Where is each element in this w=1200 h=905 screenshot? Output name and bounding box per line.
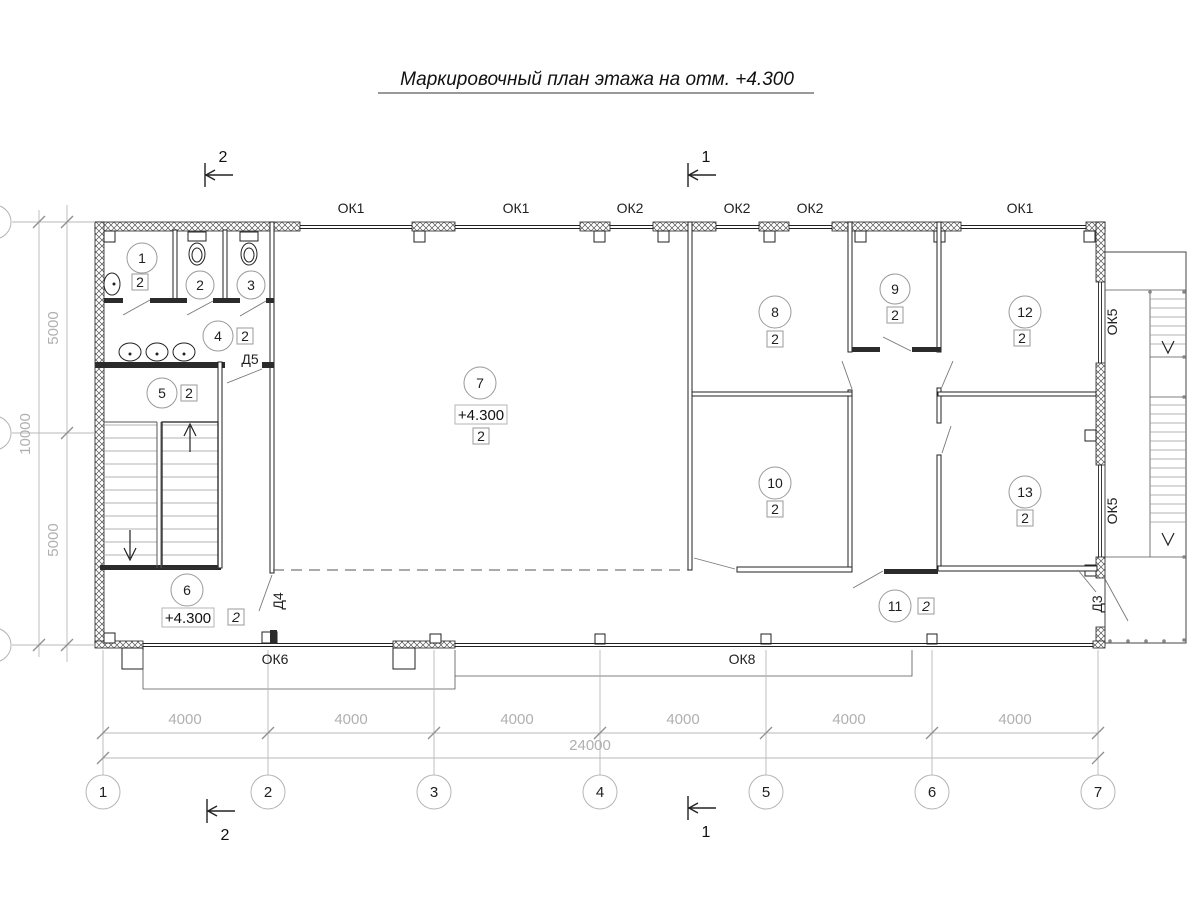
window-label-ok1: ОК1 — [338, 200, 365, 216]
room-marker-8: 8 2 — [759, 296, 791, 347]
room-marker-1: 1 2 — [127, 243, 157, 290]
window-label-ok2: ОК2 — [797, 200, 824, 216]
svg-text:11: 11 — [888, 598, 903, 614]
floor-plan-sheet: Маркировочный план этажа на отм. +4.300 — [0, 0, 1200, 900]
svg-text:2: 2 — [1021, 510, 1029, 526]
washbasin-icon — [119, 343, 141, 361]
dim-span-4: 4000 — [666, 711, 699, 728]
room-marker-5: 5 2 — [147, 378, 197, 408]
stair-down-arrow — [124, 530, 136, 560]
room-marker-13: 13 2 — [1009, 476, 1041, 526]
svg-text:2: 2 — [196, 277, 204, 293]
window-label-ok1: ОК1 — [503, 200, 530, 216]
svg-text:7: 7 — [476, 375, 484, 391]
svg-text:13: 13 — [1017, 484, 1033, 500]
door-leaf-d4 — [270, 630, 277, 644]
svg-text:2: 2 — [921, 598, 930, 614]
fixtures — [104, 232, 258, 361]
svg-text:2: 2 — [241, 328, 249, 344]
room-marker-12: 12 2 — [1009, 296, 1041, 346]
section-label: 1 — [702, 149, 711, 166]
door-label-d5: Д5 — [241, 351, 258, 367]
svg-text:1: 1 — [138, 250, 146, 266]
room-marker-3: 3 — [237, 271, 265, 299]
internal-stair — [104, 422, 218, 568]
dim-left-5000-top: 5000 — [45, 311, 62, 344]
section-label: 1 — [702, 824, 711, 841]
room-marker-6: 6 +4.300 2 — [162, 574, 244, 627]
svg-text:2: 2 — [891, 307, 899, 323]
axis-2: 2 — [264, 784, 272, 801]
room-marker-10: 10 2 — [759, 467, 791, 517]
door-label-d4: Д4 — [270, 592, 286, 609]
svg-text:8: 8 — [771, 304, 779, 320]
window-label-ok8: ОК8 — [729, 651, 756, 667]
room-marker-9: 9 2 — [880, 274, 910, 323]
axis-4: 4 — [596, 784, 604, 801]
drawing-title: Маркировочный план этажа на отм. +4.300 — [400, 69, 794, 90]
axis-5: 5 — [762, 784, 770, 801]
door-label-d3: Д3 — [1089, 595, 1105, 612]
svg-text:2: 2 — [771, 501, 779, 517]
dim-left-5000-bottom: 5000 — [45, 523, 62, 556]
window-label-ok5: ОК5 — [1104, 308, 1120, 335]
window-glazing — [143, 226, 1102, 647]
elevation-mark: +4.300 — [458, 407, 504, 424]
axis-6: 6 — [928, 784, 936, 801]
external-stair-down-arrow-1 — [1162, 341, 1174, 353]
svg-text:2: 2 — [185, 385, 193, 401]
svg-text:2: 2 — [771, 331, 779, 347]
svg-text:4: 4 — [214, 328, 222, 344]
room-marker-11: 11 2 — [879, 590, 934, 622]
svg-text:3: 3 — [247, 277, 255, 293]
svg-text:2: 2 — [1018, 330, 1026, 346]
dim-span-6: 4000 — [998, 711, 1031, 728]
axis-bubbles: 1 2 3 4 5 6 7 — [86, 775, 1115, 809]
bottom-dimensions: 4000 4000 4000 4000 4000 4000 24000 1 2 … — [86, 650, 1115, 809]
window-label-ok2: ОК2 — [617, 200, 644, 216]
svg-text:2: 2 — [231, 609, 240, 625]
washbasin-icon — [146, 343, 168, 361]
elevation-mark: +4.300 — [165, 610, 211, 627]
dim-span-3: 4000 — [500, 711, 533, 728]
dim-left-10000: 10000 — [17, 413, 34, 455]
toilet-icon — [188, 232, 206, 265]
section-mark-bottom-1: 1 — [688, 796, 716, 841]
floor-plan-drawing: Маркировочный план этажа на отм. +4.300 — [0, 0, 1200, 900]
svg-text:12: 12 — [1017, 304, 1033, 320]
window-label-ok1: ОК1 — [1007, 200, 1034, 216]
door-labels: Д5 Д4 Д3 — [241, 351, 1105, 613]
window-label-ok6: ОК6 — [262, 651, 289, 667]
axis-1: 1 — [99, 784, 107, 801]
svg-text:9: 9 — [891, 281, 899, 297]
external-stair-down-arrow-2 — [1162, 533, 1174, 545]
dim-span-2: 4000 — [334, 711, 367, 728]
dim-span-5: 4000 — [832, 711, 865, 728]
window-label-ok5: ОК5 — [1104, 497, 1120, 524]
svg-text:6: 6 — [183, 582, 191, 598]
room-marker-2: 2 — [186, 271, 214, 299]
room-marker-4: 4 2 — [203, 321, 253, 351]
svg-text:10: 10 — [767, 475, 783, 491]
svg-text:2: 2 — [136, 274, 144, 290]
svg-text:2: 2 — [477, 428, 485, 444]
left-dimensions: 5000 10000 5000 — [0, 205, 95, 662]
dim-span-1: 4000 — [168, 711, 201, 728]
axis-7: 7 — [1094, 784, 1102, 801]
section-mark-top-2: 2 — [205, 149, 233, 187]
washbasin-icon — [173, 343, 195, 361]
window-label-ok2: ОК2 — [724, 200, 751, 216]
toilet-icon — [240, 232, 258, 265]
railing-posts — [1108, 290, 1186, 643]
room-marker-7: 7 +4.300 2 — [455, 367, 507, 444]
dim-total: 24000 — [569, 737, 611, 754]
section-mark-top-1: 1 — [688, 149, 716, 187]
section-mark-bottom-2: 2 — [207, 799, 235, 844]
urinal-icon — [104, 273, 120, 295]
svg-text:5: 5 — [158, 385, 166, 401]
canopy-outlines — [143, 650, 912, 689]
axis-3: 3 — [430, 784, 438, 801]
section-label: 2 — [219, 149, 228, 166]
section-label: 2 — [221, 827, 230, 844]
